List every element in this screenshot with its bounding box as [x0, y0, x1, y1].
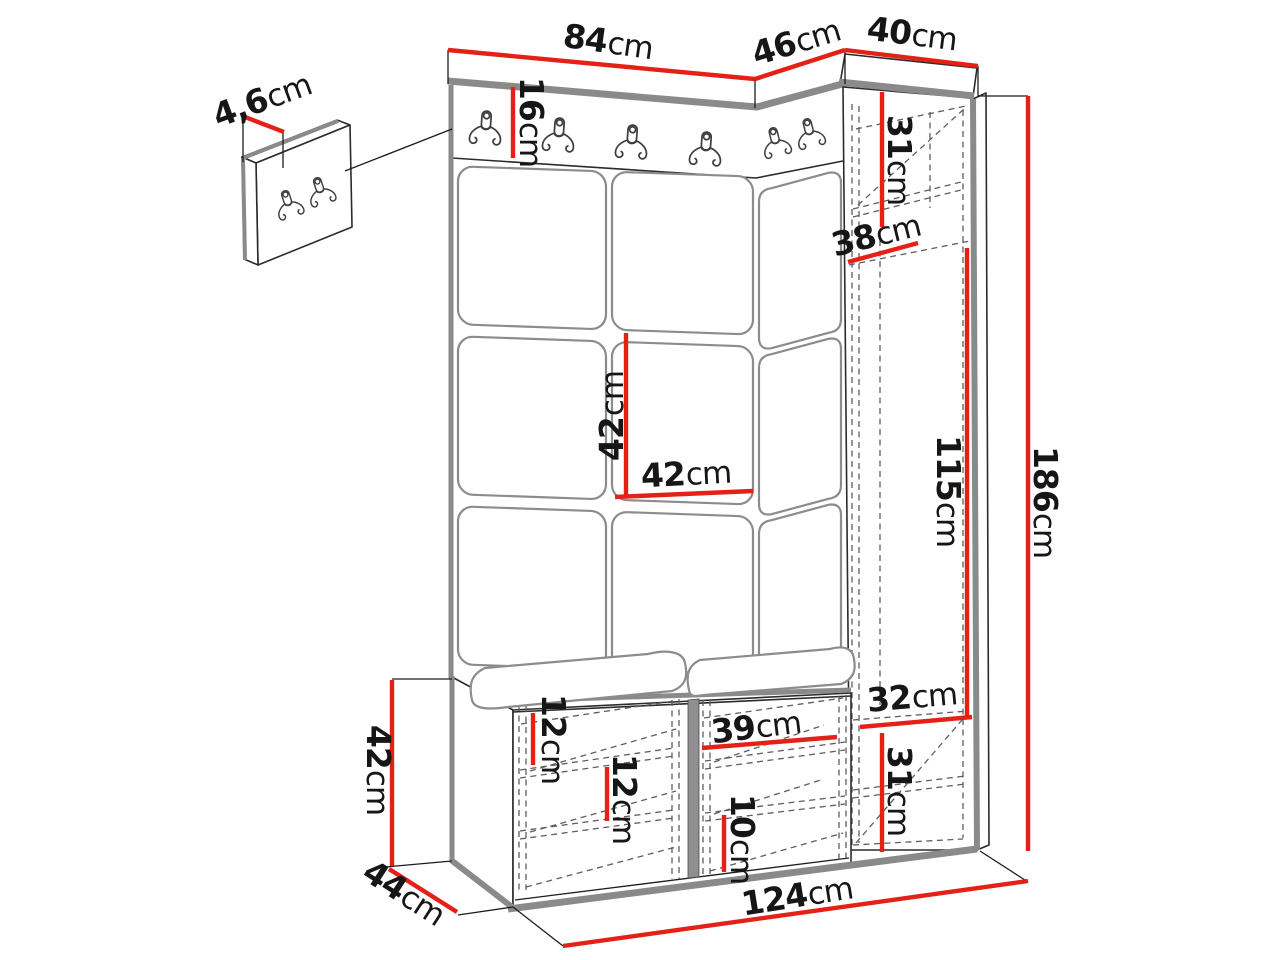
dim-bench-shelf-bottom: 10cm	[723, 794, 762, 884]
dim-cabinet-top-compartment: 31cm	[880, 115, 919, 205]
dim-hook-rail-height: 16cm	[512, 77, 551, 167]
corner-cushion-column	[759, 172, 841, 667]
cushion-panel	[458, 336, 606, 499]
dim-cabinet-width: 40cm	[865, 9, 959, 59]
dim-bench-height: 42cm	[359, 725, 398, 815]
wall-hook-panel-detail	[242, 120, 452, 265]
cabinet-right-edge	[973, 99, 977, 850]
bench-divider	[688, 699, 699, 878]
wardrobe-wall-panel	[448, 81, 846, 679]
dim-bench-shelf-top: 12cm	[534, 694, 573, 784]
cushion-panel	[759, 504, 841, 667]
bench-left-face	[452, 677, 513, 906]
dim-cabinet-inner-width: 32cm	[865, 673, 958, 720]
dim-cabinet-bottom-compartment: 31cm	[880, 746, 919, 836]
cushion-panel	[458, 166, 606, 329]
cushion-panel	[612, 172, 753, 335]
furniture-dimension-diagram: 84cm 46cm 40cm 4,6cm 16cm 31cm 38cm 42cm…	[0, 0, 1280, 960]
dim-total-height: 186cm	[1026, 446, 1065, 558]
hook-panel-left-edge	[243, 158, 245, 260]
cushion-panel	[759, 172, 841, 348]
dim-cushion-height: 42cm	[592, 371, 631, 461]
dim-bench-shelf-mid: 12cm	[605, 754, 644, 844]
dim-open-section-height: 115cm	[929, 435, 968, 547]
dim-bench-depth: 44cm	[356, 852, 453, 934]
dim-cushion-width: 42cm	[640, 452, 732, 496]
diagram-canvas: 84cm 46cm 40cm 4,6cm 16cm 31cm 38cm 42cm…	[0, 0, 1280, 960]
cushion-panel	[612, 512, 753, 675]
dim-panel-width: 84cm	[561, 16, 656, 67]
detail-leader-line	[345, 129, 452, 171]
cushion-panel	[458, 506, 606, 669]
cushion-panel	[759, 338, 841, 514]
